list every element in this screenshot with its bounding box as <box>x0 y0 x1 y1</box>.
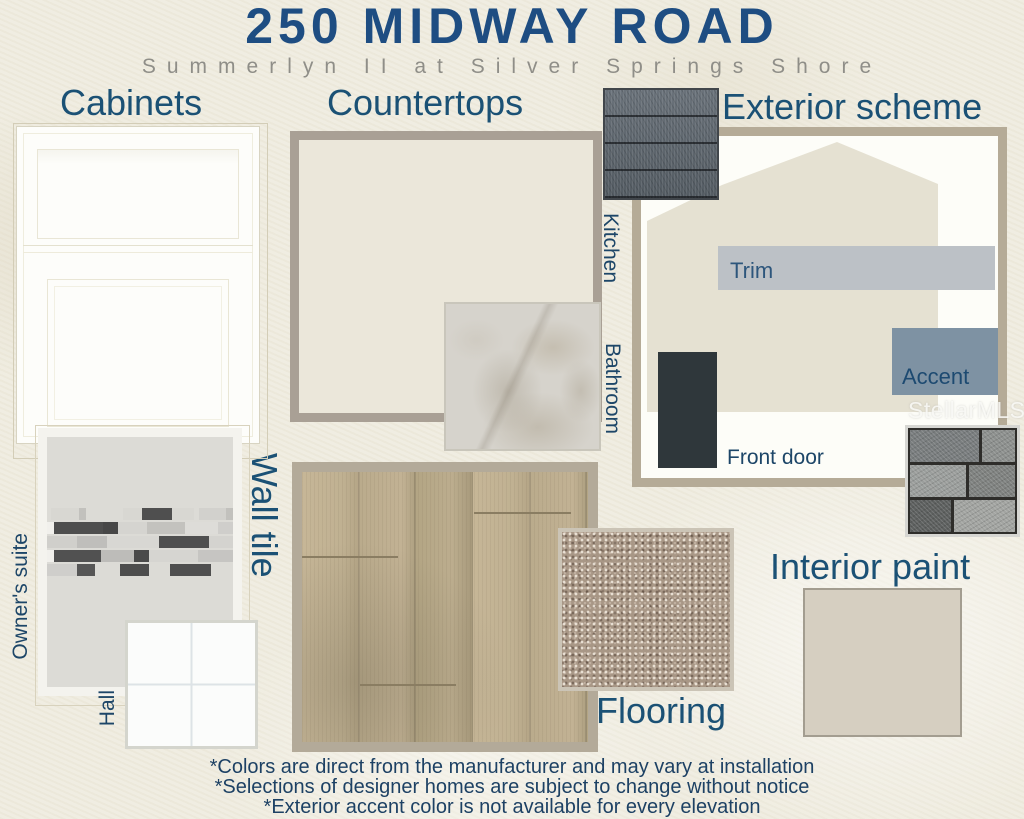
hall-label: Hall <box>97 690 118 726</box>
footnote-line: *Exterior accent color is not available … <box>0 797 1024 817</box>
trim-swatch: Trim <box>718 246 995 290</box>
page-subtitle: Summerlyn II at Silver Springs Shore <box>0 56 1024 77</box>
hall-wall-tile-sample <box>125 620 258 749</box>
roof-shingle-sample <box>603 88 719 200</box>
footnotes: *Colors are direct from the manufacturer… <box>0 757 1024 817</box>
heading-wall-tile: Wall tile <box>246 453 282 578</box>
accent-label: Accent <box>902 364 969 390</box>
footnote-line: *Colors are direct from the manufacturer… <box>0 757 1024 777</box>
cabinet-drawer-panel <box>37 149 239 239</box>
heading-flooring: Flooring <box>596 693 726 729</box>
heading-exterior-scheme: Exterior scheme <box>722 89 982 125</box>
cabinet-door-sample <box>16 126 260 444</box>
heading-countertops: Countertops <box>327 85 523 121</box>
design-board: 250 MIDWAY ROAD Summerlyn II at Silver S… <box>0 0 1024 819</box>
kitchen-label: Kitchen <box>600 213 621 283</box>
footnote-line: *Selections of designer homes are subjec… <box>0 777 1024 797</box>
stone-veneer-sample <box>905 425 1020 537</box>
accent-swatch: Accent <box>892 328 998 395</box>
wood-flooring-sample <box>292 462 598 752</box>
front-door-label: Front door <box>727 446 824 470</box>
carpet-flooring-sample <box>558 528 734 691</box>
stone-block <box>910 500 951 532</box>
stone-block <box>954 500 1015 532</box>
stone-block <box>910 465 966 497</box>
cabinet-door-panel <box>47 279 229 427</box>
interior-paint-swatch <box>803 588 962 737</box>
cabinet-rail <box>23 245 253 253</box>
bathroom-countertop-sample <box>444 302 601 451</box>
stone-block <box>969 465 1015 497</box>
watermark: StellarMLS <box>908 397 1024 424</box>
heading-cabinets: Cabinets <box>60 85 202 121</box>
owners-suite-label: Owner's suite <box>10 533 31 660</box>
trim-label: Trim <box>730 258 773 284</box>
front-door-swatch <box>658 352 717 468</box>
bathroom-label: Bathroom <box>602 343 623 434</box>
heading-interior-paint: Interior paint <box>770 549 970 585</box>
stone-block <box>910 430 979 462</box>
page-title: 250 MIDWAY ROAD <box>0 1 1024 51</box>
stone-block <box>982 430 1015 462</box>
mosaic-tile-strip <box>47 508 233 578</box>
